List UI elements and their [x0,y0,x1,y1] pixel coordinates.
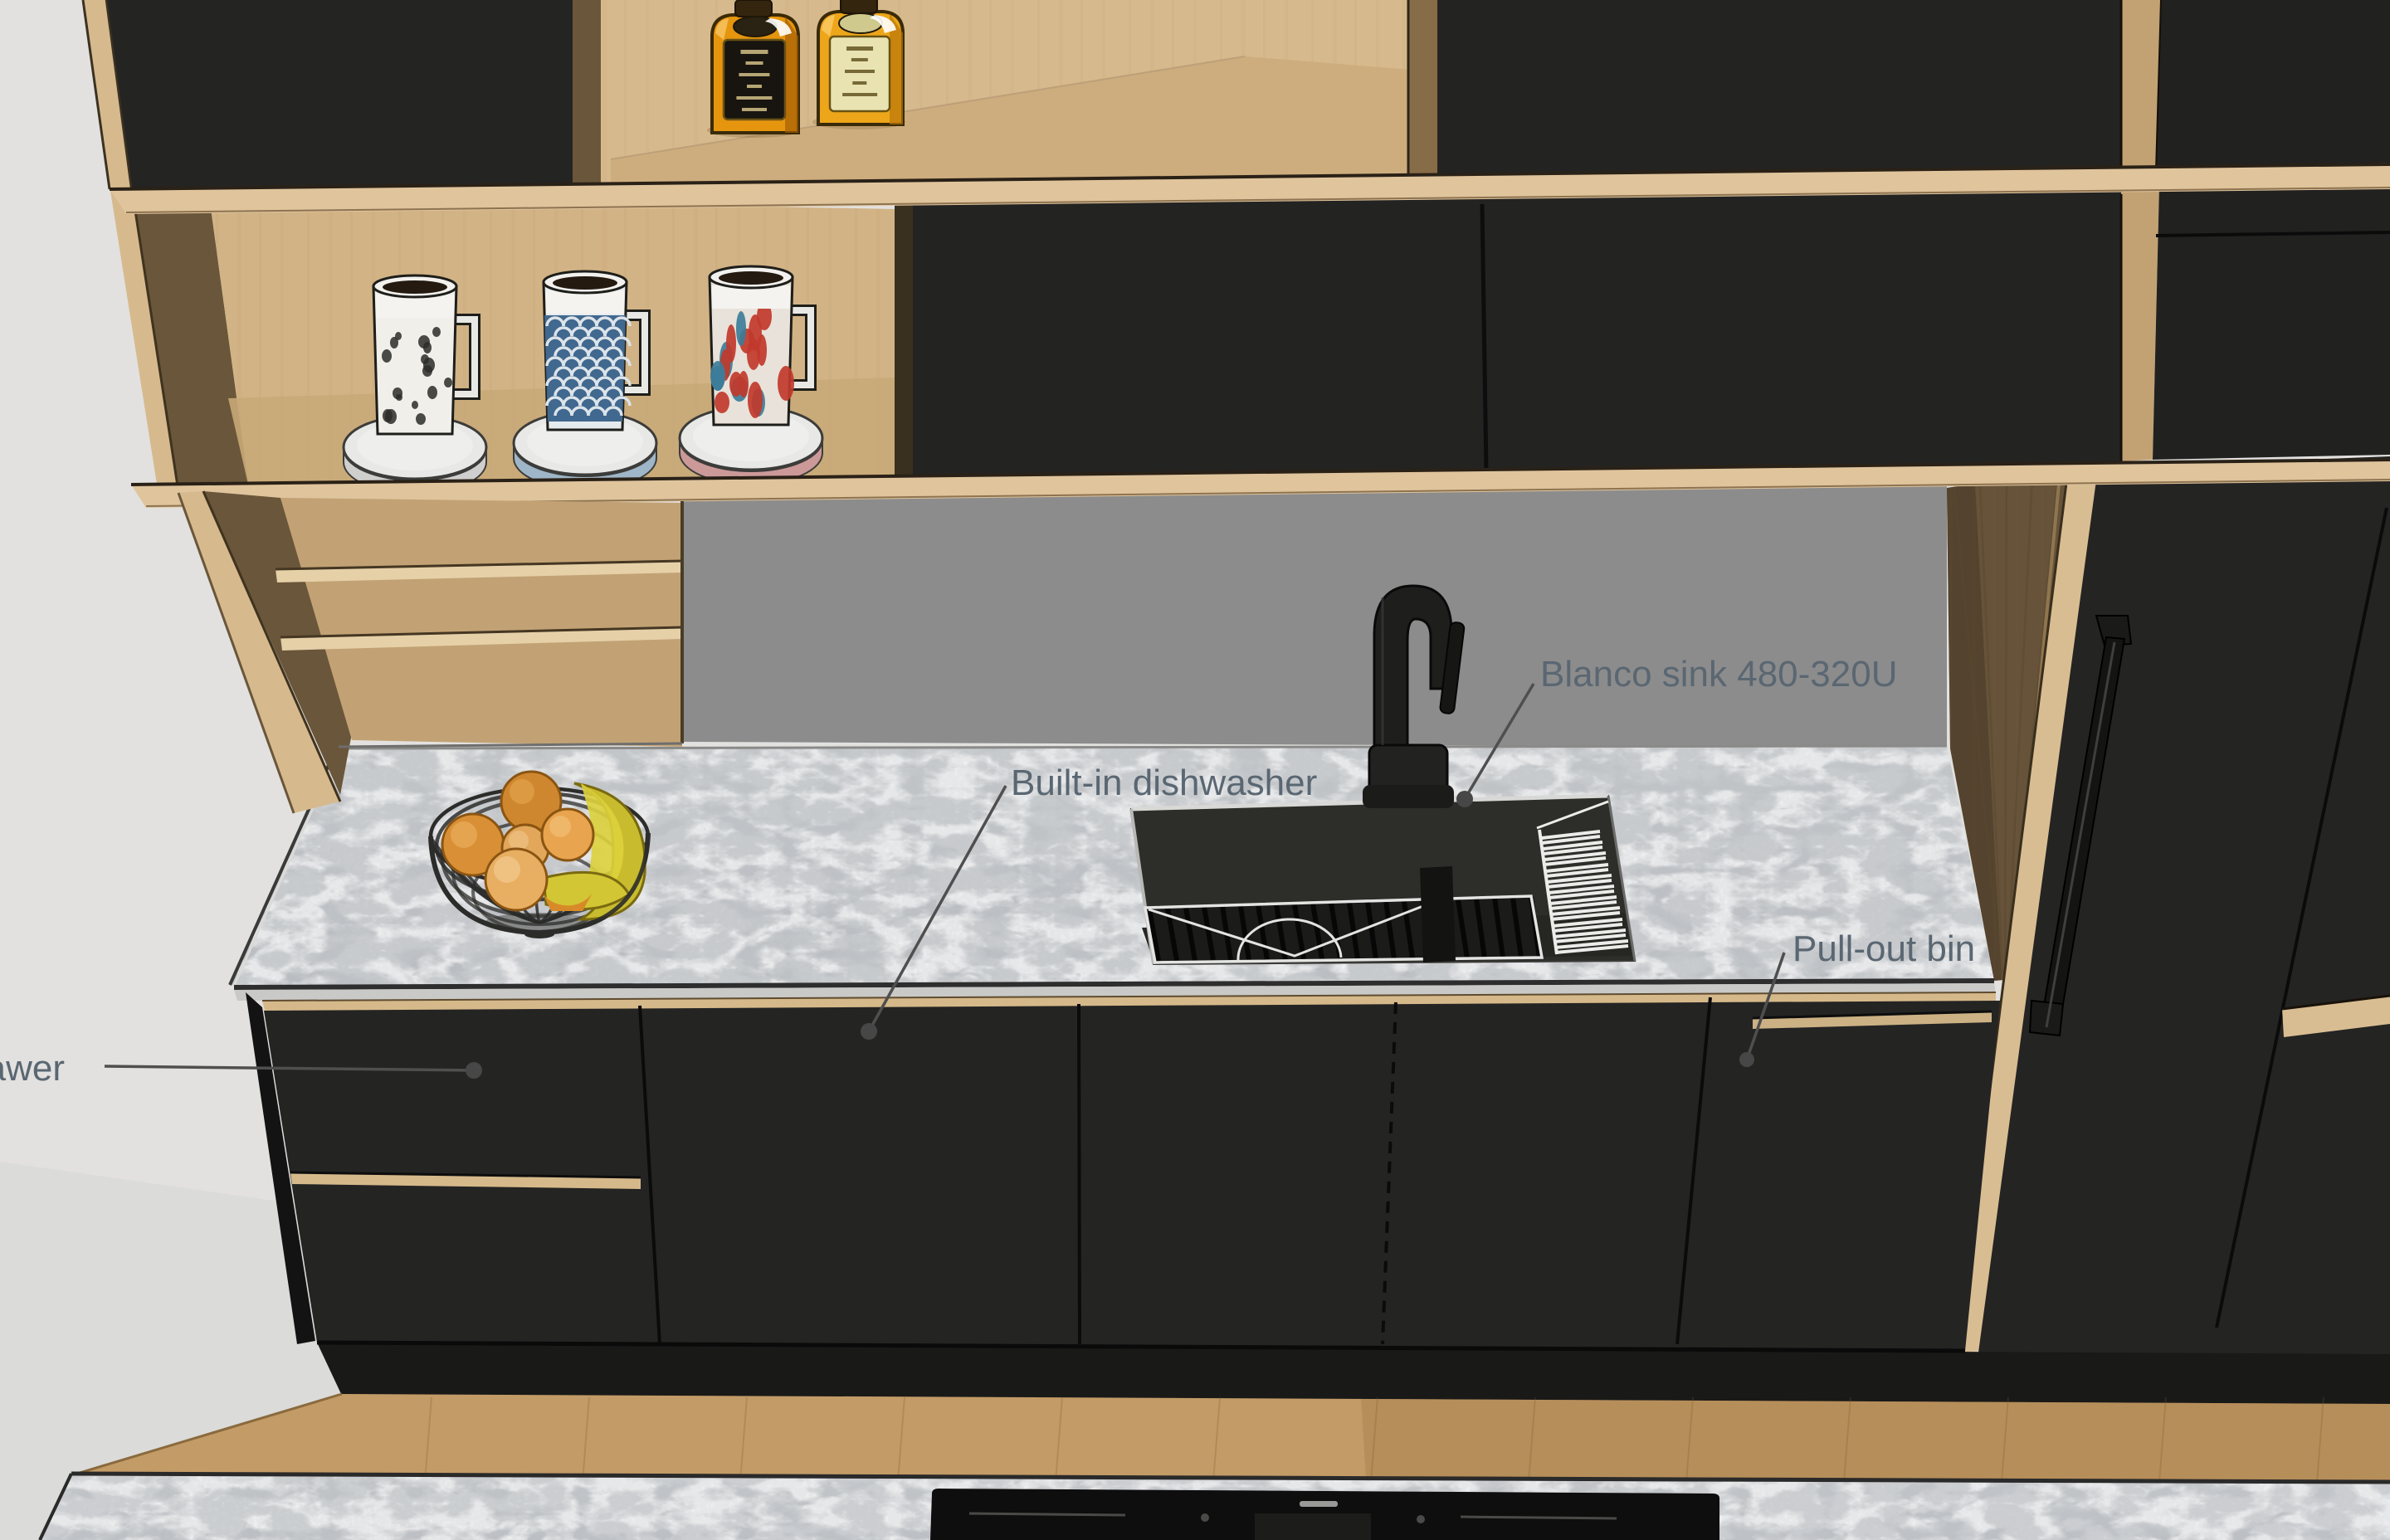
svg-text:drawer: drawer [0,1048,65,1089]
svg-text:Blanco sink 480-320U: Blanco sink 480-320U [1540,654,1897,694]
svg-text:Built-in dishwasher: Built-in dishwasher [1011,763,1317,803]
svg-text:Pull-out bin: Pull-out bin [1792,928,1975,969]
